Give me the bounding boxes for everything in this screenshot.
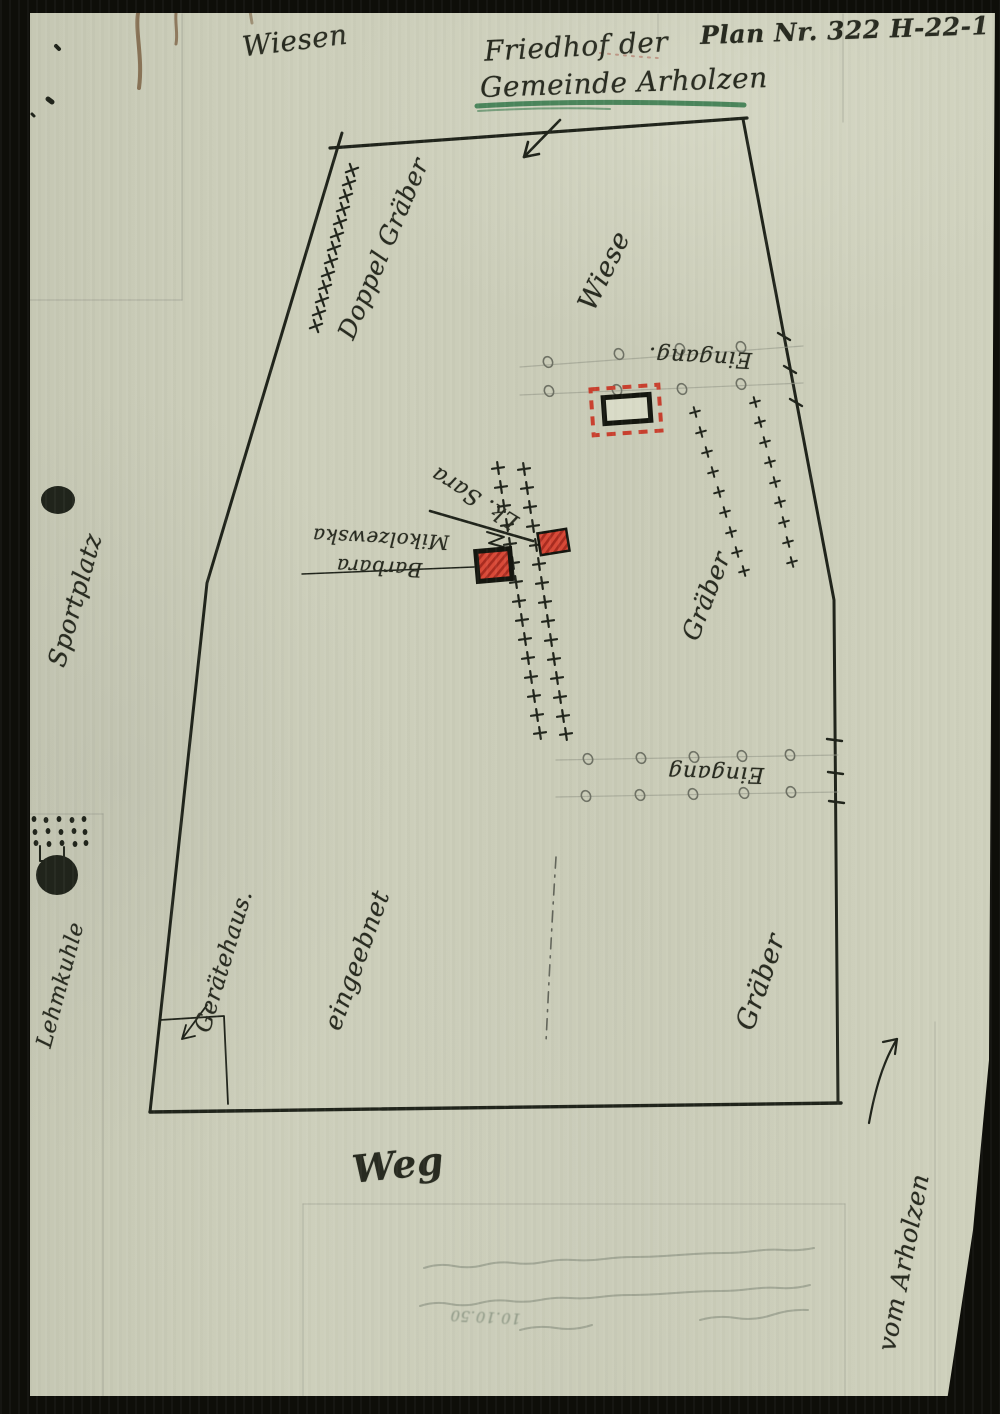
label-eingang-bottom: Eingang <box>646 758 765 787</box>
plan-drawing <box>0 0 1000 1414</box>
cemetery-plan-scan: Wiesen Friedhof der Gemeinde Arholzen Pl… <box>0 0 1000 1414</box>
scan-border-left <box>0 0 30 1414</box>
faint-note-date: 10.10.50 <box>450 1306 522 1328</box>
scan-border-bottom <box>0 1396 1000 1414</box>
scan-border-top <box>0 0 1000 13</box>
label-grave-barbara: Barbara Mikolzewska <box>279 519 482 587</box>
scan-border-right <box>945 0 1000 1414</box>
label-weg: Weg <box>350 1137 446 1191</box>
